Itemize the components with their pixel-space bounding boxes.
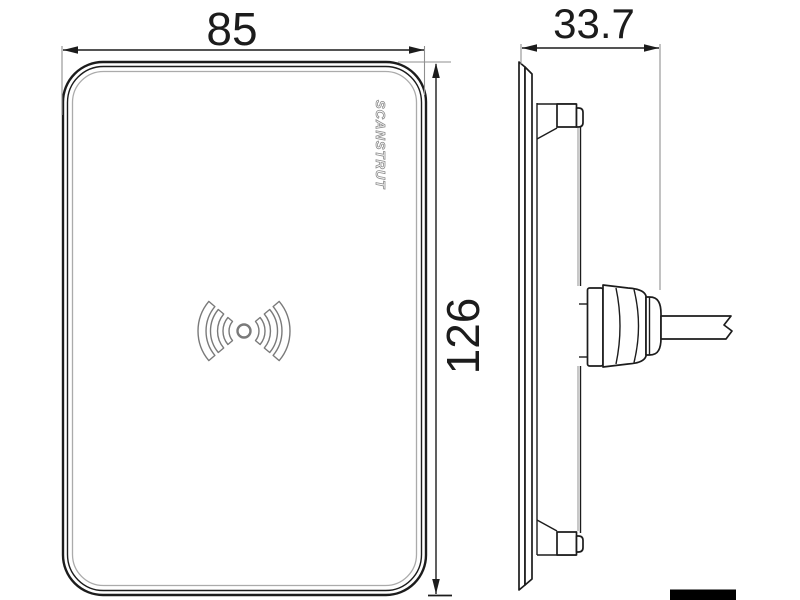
scale-bar (670, 590, 736, 600)
width-dimension-label: 85 (206, 3, 257, 55)
gland-base-plate (588, 288, 604, 366)
cable-gland (579, 285, 661, 367)
side-body-fill (537, 103, 581, 555)
height-arrow-top (432, 63, 440, 78)
dimension-height: 126 (398, 62, 489, 596)
side-back-plate (525, 67, 532, 585)
scanstrut-logo: SCANSTRUT (373, 100, 388, 189)
power-cable (661, 316, 732, 339)
bottom-clip-body (557, 532, 577, 555)
technical-drawing-page: SCANSTRUT 85 126 (0, 0, 800, 600)
bottom-clip-tab (577, 536, 584, 552)
charging-arc-left-1 (223, 318, 233, 345)
drawing-svg: SCANSTRUT 85 126 (0, 0, 800, 600)
charging-dot (238, 325, 251, 338)
gland-cap (646, 297, 661, 355)
top-clip-body (557, 104, 577, 127)
height-dimension-label: 126 (437, 298, 489, 375)
top-clip-tab (577, 108, 584, 127)
charging-arc-right-1 (256, 318, 266, 345)
side-view (519, 62, 732, 590)
height-arrow-bottom (432, 579, 440, 594)
depth-arrow-left (522, 44, 537, 52)
dimension-width: 85 (62, 3, 425, 115)
depth-arrow-right (644, 44, 659, 52)
charging-arc-left-2 (210, 310, 223, 353)
width-arrow-left (63, 46, 78, 54)
wireless-charging-icon (198, 301, 290, 360)
depth-dimension-label: 33.7 (553, 0, 635, 47)
front-view: SCANSTRUT (63, 62, 426, 595)
width-arrow-right (409, 46, 424, 54)
gland-nut-body (603, 285, 646, 367)
charging-arc-right-2 (264, 310, 277, 353)
side-fascia-plate (519, 62, 525, 590)
